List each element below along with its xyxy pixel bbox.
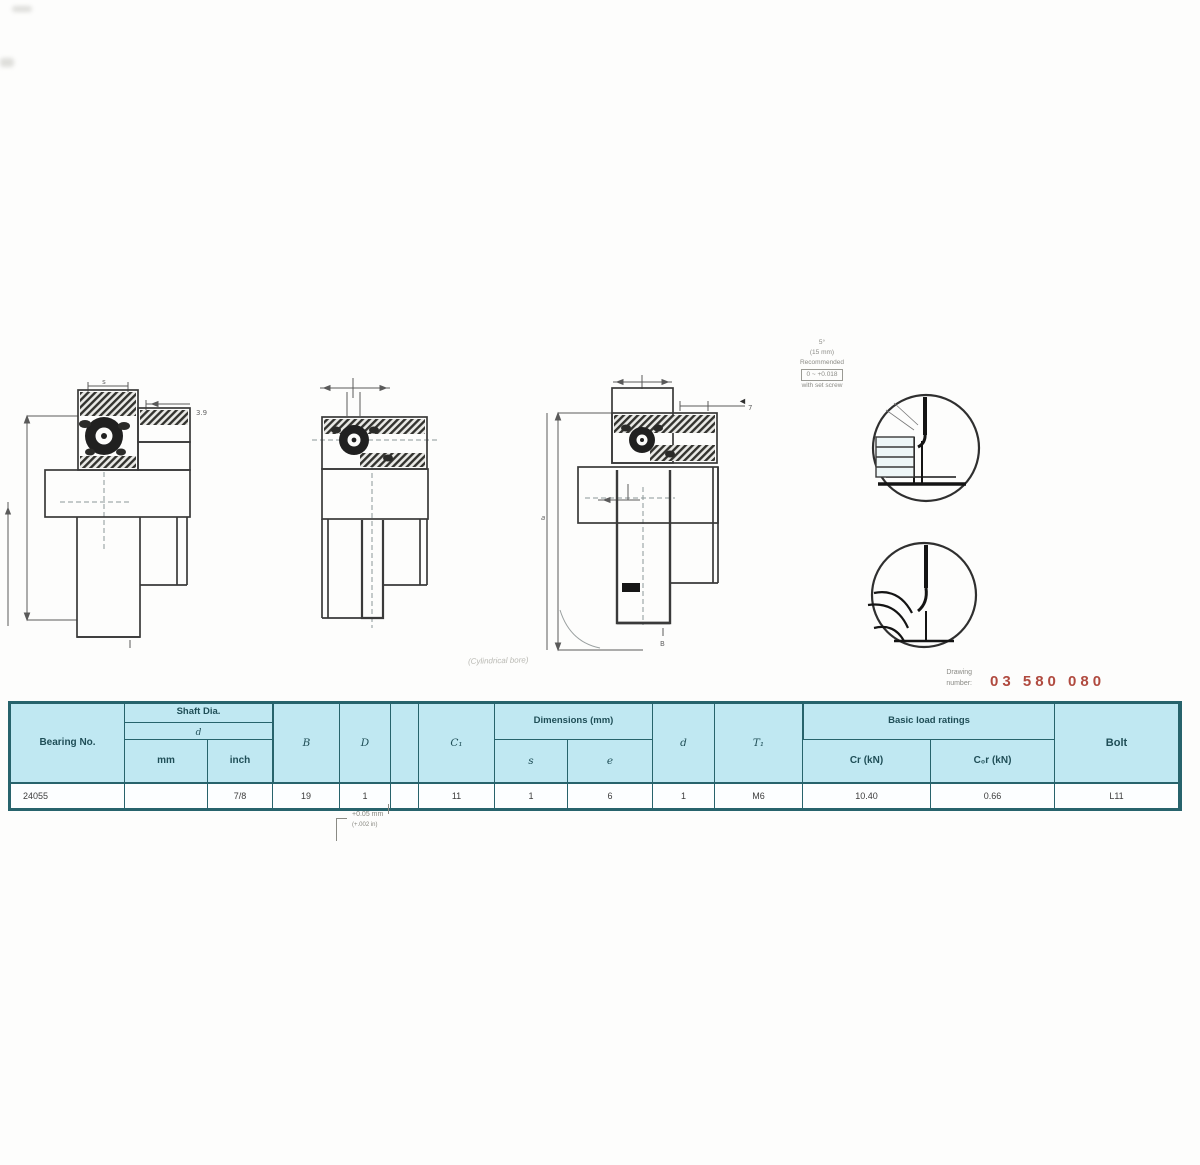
cell-s: 1 xyxy=(495,784,568,808)
header-bearing-no: Bearing No. xyxy=(11,704,125,784)
annotation-line: Recommended xyxy=(756,358,888,368)
dim-label-bottom: B xyxy=(660,640,665,648)
annotation-line: 5° xyxy=(756,338,888,348)
dim-label-side: 3.9 xyxy=(196,409,207,417)
dim-label-top: s xyxy=(102,380,106,386)
leader-arrow-icon: ◄ xyxy=(738,396,747,406)
cell-Cr: 10.40 xyxy=(803,784,931,808)
centerlines xyxy=(585,487,675,625)
scan-smudge xyxy=(0,58,14,67)
reference-code: 03 580 080 xyxy=(990,673,1175,690)
header-col-B: B xyxy=(273,704,340,784)
cell-d: 1 xyxy=(653,784,715,808)
cell-e: 6 xyxy=(568,784,653,808)
header-col-e: e xyxy=(568,740,653,784)
table-footnote: +0.05 mm (+.002 in) xyxy=(330,810,460,830)
footnote-bracket xyxy=(336,818,347,841)
header-bolt: Bolt xyxy=(1055,704,1179,784)
footnote-line: (+.002 in) xyxy=(352,821,460,830)
header-col-C1: C₁ xyxy=(419,704,495,784)
tolerance-box: 0 ~ +0.018 xyxy=(801,369,842,381)
header-shaft-group: Shaft Dia. d xyxy=(125,704,273,740)
cell-B: 19 xyxy=(273,784,340,808)
dim-label-right: 7 xyxy=(748,404,752,412)
header-shaft-d: d xyxy=(196,728,202,738)
bearing-outline xyxy=(322,417,428,618)
bearing-section-drawing-3: 7 a B xyxy=(540,370,760,680)
bearing-outline xyxy=(578,388,718,623)
reference-label: Drawing number: xyxy=(868,668,972,689)
cell-D: 1 xyxy=(340,784,391,808)
header-col-s: s xyxy=(495,740,568,784)
bearing-dimension-table: Bearing No. Shaft Dia. d mm inch B D C₁ … xyxy=(8,701,1182,811)
divider xyxy=(125,722,272,723)
centerlines xyxy=(60,472,132,552)
header-shaft-inch: inch xyxy=(208,740,273,784)
reference-label-line: Drawing xyxy=(868,668,972,679)
footnote-connector xyxy=(388,804,389,814)
set-screw xyxy=(622,583,640,592)
header-col-D: D xyxy=(340,704,391,784)
bearing-section-drawing-2 xyxy=(290,370,460,670)
dimension-lines xyxy=(320,378,390,416)
header-mid-group: Dimensions (mm) xyxy=(495,704,653,740)
detail-circle-seal-1 xyxy=(856,385,996,515)
annotation-line: with set screw xyxy=(756,381,888,391)
header-col-d: d xyxy=(653,704,715,784)
catalog-page: s 3.9 xyxy=(0,0,1200,1165)
ball-element xyxy=(79,417,130,456)
footnote-line: +0.05 mm xyxy=(352,810,460,821)
header-shaft-title: Shaft Dia. xyxy=(177,707,221,718)
cell-C0r: 0.66 xyxy=(931,784,1055,808)
detail-circle-seal-2 xyxy=(854,533,994,663)
seal-section-lines xyxy=(868,545,954,641)
cell-bearing-no: 24055 xyxy=(11,784,125,808)
detail-annotation: 5° (15 mm) Recommended 0 ~ +0.018 with s… xyxy=(756,338,888,391)
seal-laminate-block xyxy=(876,437,914,477)
scan-smudge xyxy=(12,6,32,12)
header-col-blank xyxy=(391,704,419,784)
cell-T1: M6 xyxy=(715,784,803,808)
annotation-line: (15 mm) xyxy=(756,348,888,358)
reference-label-line: number: xyxy=(868,679,972,690)
cell-shaft-inch: 7/8 xyxy=(208,784,273,808)
header-load-Cr: Cr (kN) xyxy=(803,740,931,784)
dim-label-left: a xyxy=(541,514,545,522)
bearing-section-drawing-1: s 3.9 xyxy=(0,380,250,660)
cell-bolt: L11 xyxy=(1055,784,1179,808)
cell-blank xyxy=(391,784,419,808)
header-col-T1: T₁ xyxy=(715,704,803,784)
cell-C1: 11 xyxy=(419,784,495,808)
header-load-group: Basic load ratings xyxy=(803,704,1055,740)
header-load-C0r: C₀r (kN) xyxy=(931,740,1055,784)
header-shaft-mm: mm xyxy=(125,740,208,784)
cell-shaft-mm xyxy=(125,784,208,808)
